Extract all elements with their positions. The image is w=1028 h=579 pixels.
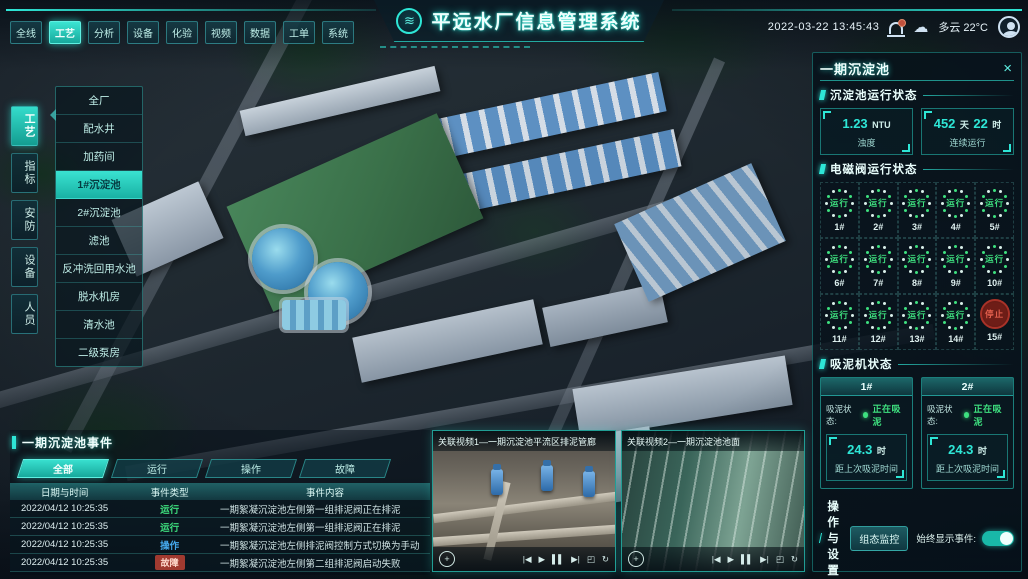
mud-scraper-cards: 1# 吸泥状态: 正在吸泥 24.3 时 距上次吸泥时间 2# — [820, 377, 1014, 489]
video-panel-1[interactable]: 关联视频1—一期沉淀池平流区排泥管廊 + |◀ ▶ ▌▌ ▶| ◰ ↻ — [432, 430, 616, 572]
valve-13-status: 运行13# — [898, 294, 937, 350]
app-window: ≋ 平远水厂信息管理系统 全线 工艺 分析 设备 化验 视频 数据 工单 系统 … — [0, 0, 1028, 579]
valve-id: 15# — [976, 332, 1013, 342]
events-filter-tabs: 全部 运行 操作 故障 — [20, 459, 430, 478]
valve-status-text: 运行 — [901, 187, 933, 219]
turbidity-value: 1.23 — [842, 116, 867, 131]
ptz-dpad-icon[interactable]: + — [439, 551, 455, 567]
mud-scraper-1-card: 1# 吸泥状态: 正在吸泥 24.3 时 距上次吸泥时间 — [820, 377, 913, 489]
valve-id: 10# — [976, 278, 1013, 288]
valve-7-status: 运行7# — [859, 238, 898, 294]
section-header: 沉淀池运行状态 — [820, 87, 1014, 103]
runtime-hours: 22 — [973, 116, 987, 131]
valve-14-status: 运行14# — [936, 294, 975, 350]
play-icon[interactable]: ▶ — [728, 551, 735, 567]
mud-time-stat: 24.3 时 距上次吸泥时间 — [927, 434, 1008, 481]
always-show-events-toggle[interactable] — [982, 531, 1014, 546]
video-panel-2[interactable]: 关联视频2—一期沉淀池池面 + |◀ ▶ ▌▌ ▶| ◰ ↻ — [621, 430, 805, 572]
event-time: 2022/04/12 10:25:35 — [10, 539, 119, 550]
prev-frame-icon[interactable]: |◀ — [523, 551, 532, 567]
valve-8-status: 运行8# — [898, 238, 937, 294]
column-header-content: 事件内容 — [220, 485, 430, 499]
valve-id: 12# — [860, 334, 897, 344]
valve-id: 7# — [860, 278, 897, 288]
ptz-dpad-icon[interactable]: + — [628, 551, 644, 567]
table-row[interactable]: 2022/04/12 10:25:35 故障 一期絮凝沉淀池左侧第二组排泥阀启动… — [10, 554, 430, 572]
events-accent-bar — [12, 436, 16, 449]
valve-id: 13# — [899, 334, 936, 344]
user-avatar-icon[interactable] — [998, 16, 1020, 38]
detail-panel-header: 一期沉淀池 × — [820, 57, 1014, 81]
valve-status-text: 运行 — [940, 299, 972, 331]
turbidity-unit: NTU — [872, 120, 891, 130]
notification-badge — [898, 19, 906, 27]
valve-id: 6# — [821, 278, 858, 288]
section-bullet-icon — [819, 359, 826, 369]
tab-gongyi[interactable]: 工艺 — [49, 21, 81, 44]
column-header-datetime: 日期与时间 — [10, 485, 119, 499]
valve-10-status: 运行10# — [975, 238, 1014, 294]
top-nav-tabs: 全线 工艺 分析 设备 化验 视频 数据 工单 系统 — [10, 21, 354, 44]
tab-shipin[interactable]: 视频 — [205, 21, 237, 44]
video-scene-pump — [491, 469, 503, 495]
turbidity-label: 浊度 — [823, 136, 910, 149]
event-type-badge: 运行 — [160, 523, 179, 534]
table-row[interactable]: 2022/04/12 10:25:35 运行 一期絮凝沉淀池左侧第一组排泥阀正在… — [10, 500, 430, 518]
submenu-item-1-chendianchi[interactable]: 1#沉淀池 — [56, 171, 142, 199]
runtime-hours-unit: 时 — [992, 120, 1001, 130]
mud-scraper-2-card: 2# 吸泥状态: 正在吸泥 24.3 时 距上次吸泥时间 — [921, 377, 1014, 489]
valve-15-status: 停止15# — [975, 294, 1014, 350]
event-type-badge: 操作 — [160, 541, 179, 552]
valve-status-text: 运行 — [862, 299, 894, 331]
section-title: 沉淀池运行状态 — [830, 87, 918, 103]
mud-time-label: 距上次吸泥时间 — [829, 462, 904, 475]
loop-icon[interactable]: ↻ — [791, 551, 798, 567]
mud-scraper-id: 2# — [922, 378, 1013, 396]
valve-1-status: 运行1# — [820, 182, 859, 238]
submenu-item-peishuijing[interactable]: 配水井 — [56, 115, 142, 143]
valve-3-status: 运行3# — [898, 182, 937, 238]
section-divider — [898, 364, 1015, 365]
mud-time-value: 24.3 — [847, 442, 872, 457]
valve-5-status: 运行5# — [975, 182, 1014, 238]
section-title: 吸泥机状态 — [830, 356, 893, 372]
events-tab-label: 故障 — [335, 461, 355, 476]
valve-status-text: 运行 — [862, 243, 894, 275]
event-content: 一期絮凝沉淀池左侧第一组排泥阀正在排泥 — [220, 520, 430, 534]
mud-scraper-id: 1# — [821, 378, 912, 396]
submenu-item-quanchang[interactable]: 全厂 — [56, 87, 142, 115]
video-scene-channel — [433, 525, 616, 547]
title-decor-dash — [380, 46, 530, 48]
turbidity-stat: 1.23 NTU 浊度 — [820, 108, 913, 155]
mud-time-unit: 时 — [877, 446, 886, 456]
valve-id: 11# — [821, 334, 858, 344]
valve-status-text: 运行 — [823, 299, 855, 331]
video-scene-pump — [541, 465, 553, 491]
valve-id: 3# — [899, 222, 936, 232]
submenu-item-erjibengfang[interactable]: 二级泵房 — [56, 339, 142, 366]
sidebar-tab-zhibiao[interactable]: 指标 — [11, 153, 38, 193]
section-title: 操作与设置 — [827, 498, 844, 578]
events-panel: 一期沉淀池事件 全部 运行 操作 故障 日期与时间 事件类型 事件内容 2022… — [10, 430, 430, 575]
top-decor-line — [6, 9, 376, 11]
page-title: 平远水厂信息管理系统 — [431, 7, 641, 34]
loop-icon[interactable]: ↻ — [602, 551, 609, 567]
status-stats: 1.23 NTU 浊度 452 天 22 时 连续运行 — [820, 108, 1014, 155]
events-tab-all[interactable]: 全部 — [17, 459, 109, 478]
app-logo-icon: ≋ — [396, 8, 422, 34]
events-tab-run[interactable]: 运行 — [111, 459, 203, 478]
video-scene-pump — [583, 471, 595, 497]
weather-cloud-icon: ☁ — [913, 20, 928, 35]
tab-quanxian[interactable]: 全线 — [10, 21, 42, 44]
valve-id: 14# — [937, 334, 974, 344]
valve-11-status: 运行11# — [820, 294, 859, 350]
section-title: 电磁阀运行状态 — [830, 161, 918, 177]
sidebar-category-tabs: 工艺 指标 安防 设备 人员 — [11, 106, 38, 334]
video-2-controls: + |◀ ▶ ▌▌ ▶| ◰ ↻ — [622, 547, 804, 571]
submenu-item-fanchongxi[interactable]: 反冲洗回用水池 — [56, 255, 142, 283]
valve-status-text: 运行 — [940, 243, 972, 275]
table-row[interactable]: 2022/04/12 10:25:35 运行 一期絮凝沉淀池左侧第一组排泥阀正在… — [10, 518, 430, 536]
submenu-item-jiayaojian[interactable]: 加药间 — [56, 143, 142, 171]
mud-time-label: 距上次吸泥时间 — [930, 462, 1005, 475]
mud-status-row: 吸泥状态: 正在吸泥 — [826, 402, 907, 428]
valve-status-text: 运行 — [979, 187, 1011, 219]
valve-12-status: 运行12# — [859, 294, 898, 350]
events-header: 一期沉淀池事件 — [10, 430, 430, 455]
prev-frame-icon[interactable]: |◀ — [712, 551, 721, 567]
title-plate: ≋ 平远水厂信息管理系统 — [374, 0, 664, 42]
events-tab-operate[interactable]: 操作 — [205, 459, 297, 478]
close-icon[interactable]: × — [1001, 61, 1014, 76]
mud-time-value: 24.3 — [948, 442, 973, 457]
valve-id: 2# — [860, 222, 897, 232]
video-1-controls: + |◀ ▶ ▌▌ ▶| ◰ ↻ — [433, 547, 615, 571]
valve-id: 8# — [899, 278, 936, 288]
events-table: 日期与时间 事件类型 事件内容 2022/04/12 10:25:35 运行 一… — [10, 483, 430, 572]
event-time: 2022/04/12 10:25:35 — [10, 521, 119, 532]
events-tab-label: 全部 — [53, 461, 73, 476]
event-type-badge: 故障 — [155, 555, 185, 570]
section-bullet-icon — [819, 533, 822, 543]
pause-icon[interactable]: ▌▌ — [741, 551, 753, 567]
operations-settings-row: 操作与设置 组态监控 始终显示事件: — [820, 498, 1014, 578]
next-frame-icon[interactable]: ▶| — [571, 551, 580, 567]
events-tab-label: 操作 — [241, 461, 261, 476]
events-tab-fault[interactable]: 故障 — [299, 459, 391, 478]
mud-status-value: 正在吸泥 — [973, 402, 1008, 428]
section-header: 电磁阀运行状态 — [820, 161, 1014, 177]
next-frame-icon[interactable]: ▶| — [760, 551, 769, 567]
datetime-display: 2022-03-22 13:45:43 — [768, 21, 880, 33]
runtime-stat: 452 天 22 时 连续运行 — [921, 108, 1014, 155]
submenu-item-2-chendianchi[interactable]: 2#沉淀池 — [56, 199, 142, 227]
runtime-label: 连续运行 — [924, 136, 1011, 149]
event-time: 2022/04/12 10:25:35 — [10, 503, 119, 514]
tab-shuju[interactable]: 数据 — [244, 21, 276, 44]
detail-panel-title: 一期沉淀池 — [820, 59, 890, 78]
pause-icon[interactable]: ▌▌ — [552, 551, 564, 567]
status-dot-icon — [964, 412, 969, 418]
valve-status-text: 运行 — [979, 243, 1011, 275]
valve-id: 5# — [976, 222, 1013, 232]
sidebar-tab-gongyi[interactable]: 工艺 — [11, 106, 38, 146]
runtime-days: 452 — [934, 116, 956, 131]
play-icon[interactable]: ▶ — [539, 551, 546, 567]
tab-huayan[interactable]: 化验 — [166, 21, 198, 44]
status-dot-icon — [863, 412, 868, 418]
tab-shebei[interactable]: 设备 — [127, 21, 159, 44]
sidebar-tab-shebei[interactable]: 设备 — [11, 247, 38, 287]
sidebar-tab-anfang[interactable]: 安防 — [11, 200, 38, 240]
valve-status-grid: 运行1# 运行2# 运行3# 运行4# 运行5# 运行6# 运行7# 运行8# … — [820, 182, 1014, 350]
notification-bell-icon[interactable] — [889, 22, 903, 34]
top-bar: ≋ 平远水厂信息管理系统 全线 工艺 分析 设备 化验 视频 数据 工单 系统 … — [0, 0, 1028, 48]
fullscreen-icon[interactable]: ◰ — [776, 551, 784, 567]
valve-id: 4# — [937, 222, 974, 232]
valve-id: 9# — [937, 278, 974, 288]
section-divider — [923, 95, 1015, 96]
event-content: 一期絮凝沉淀池左侧排泥阀控制方式切换为手动 — [220, 538, 430, 552]
table-row[interactable]: 2022/04/12 10:25:35 操作 一期絮凝沉淀池左侧排泥阀控制方式切… — [10, 536, 430, 554]
valve-status-text: 停止 — [982, 301, 1008, 327]
event-time: 2022/04/12 10:25:35 — [10, 557, 119, 568]
valve-id: 1# — [821, 222, 858, 232]
tab-fenxi[interactable]: 分析 — [88, 21, 120, 44]
tab-xitong[interactable]: 系统 — [322, 21, 354, 44]
valve-status-text: 运行 — [901, 243, 933, 275]
mud-time-stat: 24.3 时 距上次吸泥时间 — [826, 434, 907, 481]
valve-status-text: 运行 — [901, 299, 933, 331]
events-title: 一期沉淀池事件 — [22, 434, 113, 451]
weather-text: 多云 22°C — [938, 19, 988, 35]
sidebar-tab-renyuan[interactable]: 人员 — [11, 294, 38, 334]
valve-6-status: 运行6# — [820, 238, 859, 294]
valve-4-status: 运行4# — [936, 182, 975, 238]
top-right-info: 2022-03-22 13:45:43 ☁ 多云 22°C — [768, 16, 1020, 38]
event-type-badge: 运行 — [160, 505, 179, 516]
event-content: 一期絮凝沉淀池左侧第二组排泥阀启动失败 — [220, 556, 430, 570]
always-show-events-label: 始终显示事件: — [916, 531, 976, 545]
tab-gongdan[interactable]: 工单 — [283, 21, 315, 44]
runtime-days-unit: 天 — [960, 120, 969, 130]
valve-status-text: 运行 — [862, 187, 894, 219]
valve-9-status: 运行9# — [936, 238, 975, 294]
detail-panel: 一期沉淀池 × 沉淀池运行状态 1.23 NTU 浊度 452 天 22 时 连… — [812, 52, 1022, 572]
video-1-title: 关联视频1—一期沉淀池平流区排泥管廊 — [433, 431, 615, 451]
submenu-item-qingshuichi[interactable]: 清水池 — [56, 311, 142, 339]
events-tab-label: 运行 — [147, 461, 167, 476]
submenu-item-lvchi[interactable]: 滤池 — [56, 227, 142, 255]
section-bullet-icon — [819, 90, 826, 100]
process-submenu: 全厂 配水井 加药间 1#沉淀池 2#沉淀池 滤池 反冲洗回用水池 脱水机房 清… — [55, 86, 143, 367]
event-content: 一期絮凝沉淀池左侧第一组排泥阀正在排泥 — [220, 502, 430, 516]
events-table-header: 日期与时间 事件类型 事件内容 — [10, 483, 430, 500]
valve-2-status: 运行2# — [859, 182, 898, 238]
mud-status-label: 吸泥状态: — [927, 403, 960, 427]
section-bullet-icon — [819, 164, 826, 174]
mud-time-unit: 时 — [978, 446, 987, 456]
fullscreen-icon[interactable]: ◰ — [587, 551, 595, 567]
section-header: 吸泥机状态 — [820, 356, 1014, 372]
mud-status-value: 正在吸泥 — [872, 402, 907, 428]
submenu-item-tuoshuijifang[interactable]: 脱水机房 — [56, 283, 142, 311]
column-header-type: 事件类型 — [119, 485, 220, 499]
scada-monitor-button[interactable]: 组态监控 — [850, 526, 908, 551]
mud-status-label: 吸泥状态: — [826, 403, 859, 427]
section-divider — [923, 169, 1015, 170]
valve-status-text: 运行 — [940, 187, 972, 219]
mud-status-row: 吸泥状态: 正在吸泥 — [927, 402, 1008, 428]
valve-status-text: 运行 — [823, 187, 855, 219]
valve-status-text: 运行 — [823, 243, 855, 275]
video-2-title: 关联视频2—一期沉淀池池面 — [622, 431, 804, 451]
top-decor-line — [672, 9, 1022, 11]
